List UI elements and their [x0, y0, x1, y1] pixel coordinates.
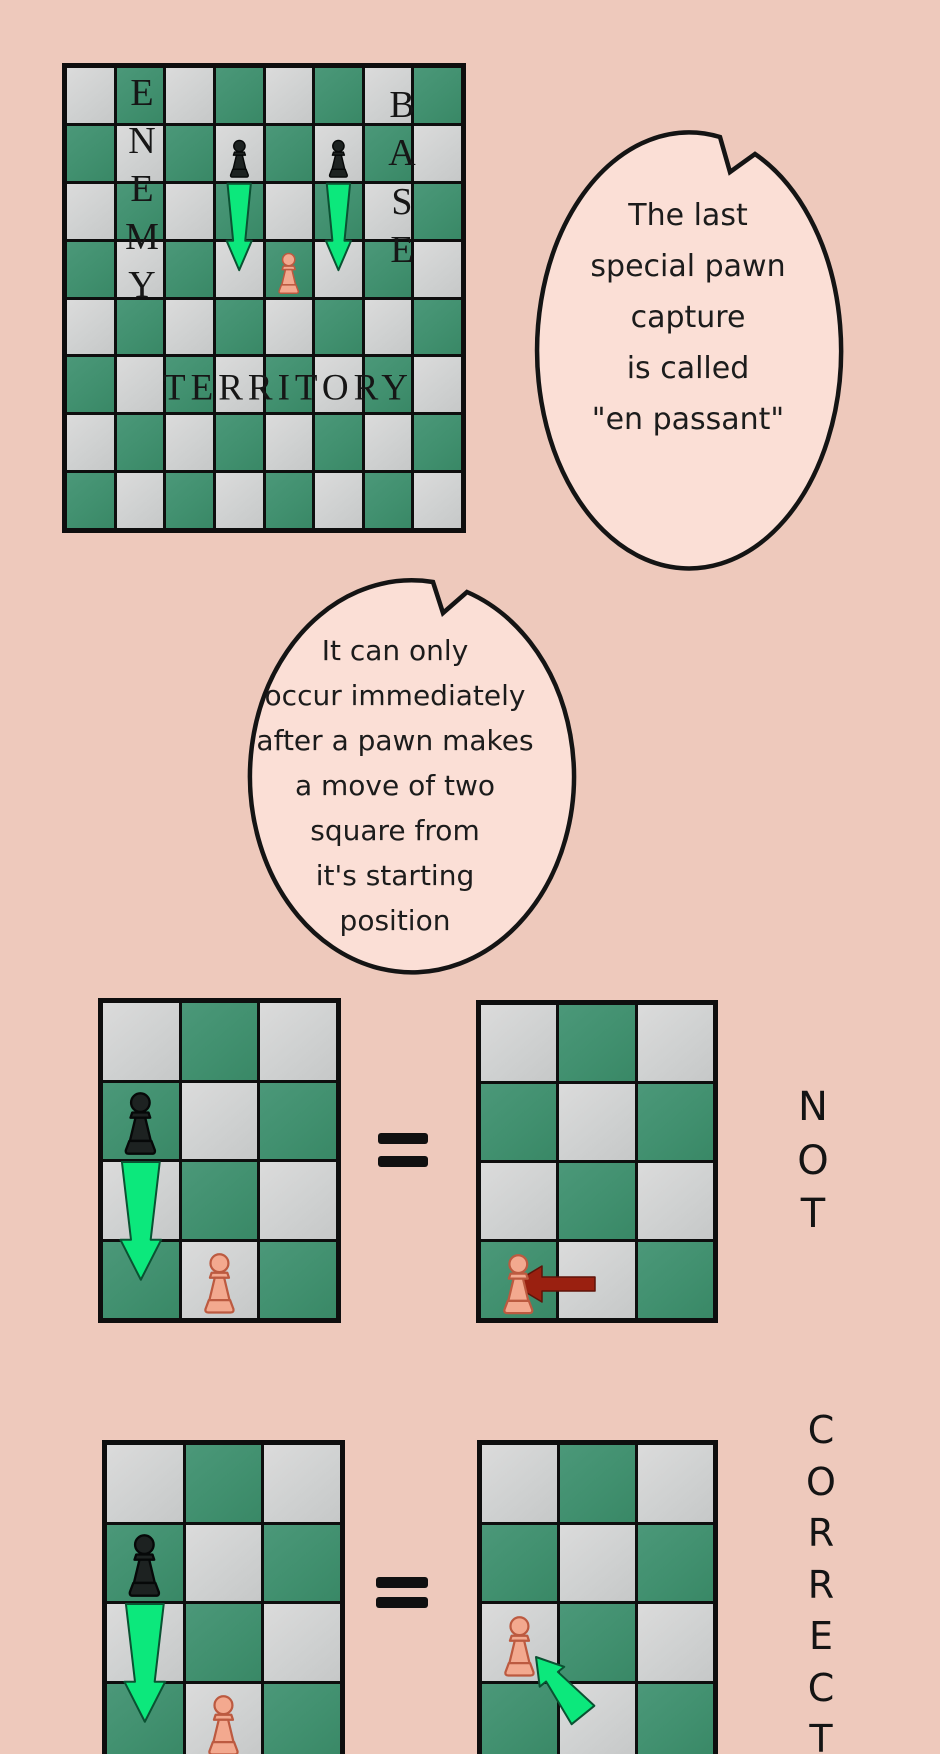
board-square: [559, 1005, 634, 1081]
board-square: [107, 1445, 183, 1522]
board-square: [166, 242, 213, 297]
board-square: [67, 357, 114, 412]
label-enemy-letter: Y: [128, 266, 155, 304]
board-square: [117, 300, 164, 355]
label-base-letter: E: [390, 231, 413, 269]
speech-bubble-1-text: The last special pawn capture is called …: [538, 190, 838, 445]
board-square: [365, 415, 412, 470]
label-base-letter: A: [388, 134, 415, 172]
board-square: [315, 473, 362, 528]
board-square: [182, 1083, 258, 1160]
board-square: [107, 1604, 183, 1681]
board-square: [560, 1684, 635, 1754]
board-square: [315, 300, 362, 355]
board-square: [216, 473, 263, 528]
board-square: [67, 415, 114, 470]
board-square: [414, 357, 461, 412]
board-square: [638, 1084, 713, 1160]
board-square: [182, 1242, 258, 1319]
equals-sign-bar: [376, 1577, 428, 1588]
board-square: [103, 1083, 179, 1160]
board-square: [260, 1162, 336, 1239]
board-square: [365, 473, 412, 528]
board-square: [260, 1083, 336, 1160]
board-square: [560, 1604, 635, 1681]
board-square: [638, 1445, 713, 1522]
label-base-letter: B: [389, 86, 414, 124]
board-square: [117, 473, 164, 528]
board-square: [414, 126, 461, 181]
board-square: [266, 300, 313, 355]
board-square: [216, 242, 263, 297]
board-square: [638, 1525, 713, 1602]
board-square: [67, 473, 114, 528]
board-square: [264, 1445, 340, 1522]
board-square: [315, 415, 362, 470]
board-square: [186, 1684, 262, 1754]
board-square: [182, 1003, 258, 1080]
equals-sign-bar: [378, 1133, 428, 1144]
label-correct-letter: E: [809, 1617, 833, 1655]
label-territory: TERRITORY: [163, 370, 413, 407]
label-not-letter: O: [797, 1141, 828, 1181]
board-correct-left: [102, 1440, 345, 1754]
board-square: [67, 300, 114, 355]
board-square: [216, 126, 263, 181]
board-square: [67, 184, 114, 239]
board-square: [67, 126, 114, 181]
board-square: [266, 415, 313, 470]
board-square: [482, 1445, 557, 1522]
board-square: [117, 357, 164, 412]
board-square: [315, 68, 362, 123]
board-square: [260, 1242, 336, 1319]
board-square: [266, 126, 313, 181]
board-correct-right: [477, 1440, 718, 1754]
board-main-territory: ENEMYBASETERRITORY: [62, 63, 466, 533]
label-enemy-letter: E: [130, 74, 153, 112]
label-not-letter: T: [801, 1194, 825, 1234]
equals-sign-bar: [378, 1156, 428, 1167]
label-correct-letter: C: [808, 1669, 835, 1707]
board-square: [482, 1604, 557, 1681]
equals-sign-bar: [376, 1597, 428, 1608]
board-square: [186, 1604, 262, 1681]
label-enemy-letter: N: [128, 122, 155, 160]
board-square: [559, 1084, 634, 1160]
board-square: [414, 184, 461, 239]
board-square: [414, 415, 461, 470]
board-square: [266, 473, 313, 528]
board-square: [638, 1604, 713, 1681]
board-square: [638, 1242, 713, 1318]
board-square: [67, 242, 114, 297]
label-base-letter: S: [391, 183, 412, 221]
board-square: [103, 1162, 179, 1239]
board-square: [216, 300, 263, 355]
board-square: [117, 415, 164, 470]
board-square: [166, 68, 213, 123]
board-square: [107, 1684, 183, 1754]
board-square: [107, 1525, 183, 1602]
label-enemy-letter: M: [125, 218, 159, 256]
board-square: [482, 1684, 557, 1754]
board-square: [414, 68, 461, 123]
board-square: [414, 473, 461, 528]
comic-page: The last special pawn capture is called …: [0, 0, 940, 1754]
board-square: [414, 300, 461, 355]
board-square: [481, 1242, 556, 1318]
board-square: [315, 242, 362, 297]
board-square: [260, 1003, 336, 1080]
board-square: [166, 300, 213, 355]
label-correct-letter: C: [808, 1411, 835, 1449]
board-square: [638, 1684, 713, 1754]
board-square: [166, 184, 213, 239]
board-square: [365, 300, 412, 355]
board-square: [560, 1525, 635, 1602]
board-square: [67, 68, 114, 123]
board-square: [166, 473, 213, 528]
board-square: [216, 68, 263, 123]
board-square: [216, 184, 263, 239]
board-square: [481, 1084, 556, 1160]
label-correct-letter: T: [809, 1720, 832, 1754]
board-square: [264, 1684, 340, 1754]
board-square: [186, 1445, 262, 1522]
label-not-letter: N: [798, 1087, 828, 1127]
board-square: [315, 126, 362, 181]
board-square: [482, 1525, 557, 1602]
board-square: [414, 242, 461, 297]
speech-bubble-2-text: It can only occur immediately after a pa…: [225, 628, 565, 943]
board-square: [560, 1445, 635, 1522]
board-square: [266, 242, 313, 297]
board-square: [264, 1525, 340, 1602]
board-square: [266, 184, 313, 239]
label-correct-letter: R: [808, 1566, 834, 1604]
board-square: [186, 1525, 262, 1602]
label-enemy-letter: E: [130, 170, 153, 208]
board-square: [216, 415, 263, 470]
board-square: [264, 1604, 340, 1681]
board-square: [166, 126, 213, 181]
label-correct-letter: R: [808, 1514, 834, 1552]
board-square: [103, 1003, 179, 1080]
label-correct-letter: O: [806, 1463, 836, 1501]
board-square: [266, 68, 313, 123]
board-square: [481, 1163, 556, 1239]
board-square: [481, 1005, 556, 1081]
board-not-right: [476, 1000, 718, 1323]
board-square: [559, 1242, 634, 1318]
board-square: [103, 1242, 179, 1319]
board-square: [559, 1163, 634, 1239]
board-square: [315, 184, 362, 239]
board-not-left: [98, 998, 341, 1323]
board-square: [166, 415, 213, 470]
board-square: [182, 1162, 258, 1239]
board-square: [638, 1005, 713, 1081]
board-square: [638, 1163, 713, 1239]
